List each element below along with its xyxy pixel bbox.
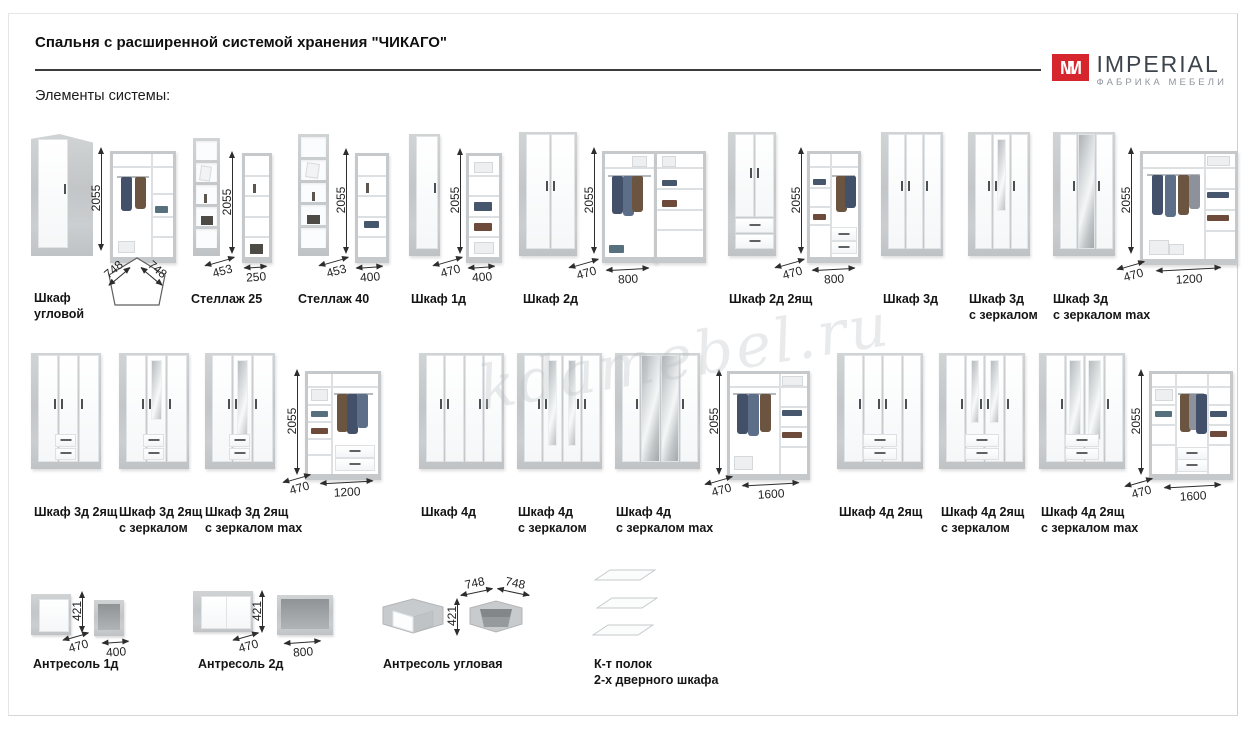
section-subtitle: Элементы системы: bbox=[35, 88, 170, 104]
product-caption: Антресоль 2д bbox=[198, 656, 283, 672]
coat bbox=[612, 176, 623, 214]
drawer-stack bbox=[965, 434, 999, 460]
dim-width: 400 bbox=[468, 266, 495, 285]
folded-clothes bbox=[155, 206, 168, 213]
shelving-closed-view bbox=[298, 134, 329, 256]
coat bbox=[1189, 175, 1200, 209]
product-caption: Шкаф 4д 2ящс зеркалом bbox=[941, 504, 1024, 536]
wardrobe-closed-view bbox=[939, 353, 1025, 469]
drawer-stack bbox=[143, 434, 165, 460]
drawer bbox=[229, 448, 251, 461]
storage-box bbox=[632, 156, 647, 167]
wardrobe-closed-view bbox=[881, 132, 943, 256]
wardrobe-open-view bbox=[1140, 151, 1238, 265]
drawer bbox=[735, 234, 774, 249]
wardrobe-open-view bbox=[305, 371, 381, 480]
door-panel bbox=[201, 596, 227, 629]
dim-width: 1600 bbox=[1165, 485, 1222, 505]
storage-box bbox=[1207, 156, 1229, 166]
books bbox=[199, 165, 212, 181]
folded-clothes bbox=[609, 245, 624, 253]
storage-box bbox=[1155, 389, 1173, 401]
dim-width: 250 bbox=[244, 266, 267, 284]
dim-height: 2055 bbox=[590, 147, 599, 254]
dim-depth: 470 bbox=[63, 633, 93, 657]
coat bbox=[135, 177, 146, 209]
folded-clothes bbox=[364, 221, 379, 228]
wardrobe-open-view bbox=[807, 151, 861, 263]
coat bbox=[760, 394, 771, 432]
shelf-panel bbox=[592, 624, 654, 637]
dim-depth: 470 bbox=[1125, 478, 1157, 502]
drawer bbox=[1065, 434, 1099, 447]
dim-side-a: 748 bbox=[458, 573, 493, 596]
product-caption: Шкаф 4дс зеркалом bbox=[518, 504, 587, 536]
door-panel bbox=[1060, 134, 1077, 249]
storage-box bbox=[118, 241, 136, 253]
wardrobe-open-view bbox=[466, 153, 502, 263]
wardrobe-closed-view bbox=[519, 132, 577, 256]
door-panel bbox=[622, 355, 640, 462]
drawer-stack bbox=[863, 434, 897, 460]
door-panel bbox=[524, 355, 542, 462]
drawer bbox=[863, 448, 897, 461]
wardrobe-open-hanging-view bbox=[602, 151, 657, 263]
catalog-sheet: Спальня с расширенной системой хранения … bbox=[8, 13, 1238, 716]
catalog-page: { "page": { "title": "Спальня с расширен… bbox=[0, 0, 1245, 730]
cabinet-interior bbox=[281, 599, 329, 629]
dim-width: 1600 bbox=[743, 483, 800, 503]
mirror-door bbox=[661, 355, 679, 462]
vase bbox=[312, 192, 315, 201]
storage-box bbox=[1169, 244, 1184, 254]
door-panel bbox=[465, 355, 483, 462]
folded-clothes bbox=[782, 432, 802, 438]
door-panel bbox=[680, 355, 698, 462]
drawer bbox=[831, 227, 857, 240]
product-caption: Шкаф 4дс зеркалом max bbox=[616, 504, 713, 536]
shelf-panel bbox=[594, 569, 656, 582]
dim-width: 1200 bbox=[321, 481, 374, 501]
vase bbox=[253, 184, 256, 193]
folded-clothes bbox=[311, 411, 328, 417]
product-caption: Антресоль угловая bbox=[383, 656, 503, 672]
folded-clothes bbox=[1207, 215, 1229, 221]
dim-height: 2055 bbox=[1127, 147, 1136, 254]
coat bbox=[1178, 175, 1189, 215]
product-caption: Шкаф 3дс зеркалом max bbox=[1053, 291, 1150, 323]
dim-height: 2055 bbox=[456, 148, 465, 254]
shelving-closed-view bbox=[193, 138, 220, 256]
wardrobe-closed-view bbox=[1053, 132, 1115, 256]
mirror bbox=[1088, 360, 1101, 440]
storage-box bbox=[474, 242, 493, 254]
drawer bbox=[1065, 448, 1099, 461]
coat bbox=[121, 177, 132, 211]
dim-width: 1200 bbox=[1157, 267, 1222, 287]
door-panel bbox=[993, 134, 1010, 249]
drawer bbox=[831, 241, 857, 254]
door-panel bbox=[735, 134, 754, 217]
dim-height: 2055 bbox=[1137, 369, 1146, 475]
wardrobe-closed-view bbox=[419, 353, 504, 469]
dim-depth: 453 bbox=[319, 257, 353, 282]
door-panel bbox=[975, 134, 992, 249]
dim-height: 421 bbox=[258, 590, 267, 633]
door-panel bbox=[946, 355, 965, 462]
corner-antresol-closed-view bbox=[381, 598, 445, 634]
dim-width: 800 bbox=[607, 268, 650, 287]
folded-clothes bbox=[813, 179, 826, 185]
wardrobe-closed-view bbox=[1039, 353, 1125, 469]
door-panel bbox=[924, 134, 941, 249]
folded-clothes bbox=[1210, 431, 1227, 437]
drawer bbox=[229, 434, 251, 447]
mirror bbox=[237, 360, 249, 440]
coat bbox=[737, 394, 748, 434]
drawer bbox=[55, 448, 77, 461]
door-panel bbox=[226, 596, 251, 629]
product-caption: Шкафугловой bbox=[34, 290, 84, 322]
dim-depth: 470 bbox=[775, 259, 809, 284]
dim-height: 2055 bbox=[293, 369, 302, 475]
mirror bbox=[971, 360, 980, 423]
dim-height: 2055 bbox=[797, 147, 806, 254]
door-panel bbox=[1096, 134, 1113, 249]
product-caption: Шкаф 2д 2ящ bbox=[729, 291, 812, 307]
folded-clothes bbox=[782, 410, 802, 416]
wardrobe-closed-view bbox=[728, 132, 776, 256]
folded-clothes bbox=[662, 200, 678, 206]
drawer bbox=[1177, 459, 1208, 472]
door-panel bbox=[844, 355, 863, 462]
door-panel bbox=[484, 355, 502, 462]
brand-name: IMPERIAL bbox=[1096, 54, 1227, 75]
brand-logo: MM IMPERIAL ФАБРИКА МЕБЕЛИ bbox=[1052, 54, 1227, 88]
door-panel bbox=[79, 355, 99, 462]
wardrobe-closed-view bbox=[31, 353, 101, 469]
shelf-panel bbox=[596, 597, 658, 610]
wardrobe-closed-view bbox=[205, 353, 275, 469]
shelving-open-view bbox=[242, 153, 272, 263]
folded-clothes bbox=[813, 214, 826, 220]
dim-side-b: 748 bbox=[498, 573, 533, 596]
storage-box bbox=[474, 162, 493, 173]
books bbox=[305, 162, 320, 179]
mirror bbox=[997, 139, 1006, 211]
product-caption: Шкаф 3дс зеркалом bbox=[969, 291, 1038, 323]
door-panel bbox=[167, 355, 187, 462]
product-caption: Шкаф 2д bbox=[523, 291, 578, 307]
coat bbox=[632, 176, 643, 212]
dim-height: 421 bbox=[78, 591, 87, 633]
drawer bbox=[143, 448, 165, 461]
product-caption: Стеллаж 40 bbox=[298, 291, 369, 307]
product-caption: Стеллаж 25 bbox=[191, 291, 262, 307]
product-caption: Шкаф 4д 2ящс зеркалом max bbox=[1041, 504, 1138, 536]
product-caption: Шкаф 3д 2ящ bbox=[34, 504, 117, 520]
dim-depth: 470 bbox=[569, 259, 603, 284]
mirror bbox=[1069, 360, 1082, 440]
door-panel bbox=[416, 136, 438, 249]
dim-depth: 470 bbox=[283, 474, 315, 498]
door-panel bbox=[39, 599, 69, 632]
product-caption: Шкаф 4д bbox=[421, 504, 476, 520]
door-panel bbox=[38, 139, 68, 248]
storage-box bbox=[1149, 240, 1169, 255]
product-caption: Шкаф 4д 2ящ bbox=[839, 504, 922, 520]
folded-clothes bbox=[1207, 192, 1229, 198]
door-panel bbox=[1005, 355, 1024, 462]
mirror bbox=[990, 360, 999, 423]
dim-depth: 470 bbox=[433, 257, 467, 282]
door-panel bbox=[526, 134, 550, 249]
drawer bbox=[965, 434, 999, 447]
dim-depth: 470 bbox=[1117, 261, 1149, 285]
folded-clothes bbox=[474, 223, 491, 231]
drawer-stack bbox=[735, 218, 774, 249]
mirror bbox=[151, 360, 163, 420]
drawer-stack bbox=[229, 434, 251, 460]
dim-depth: 453 bbox=[205, 257, 239, 282]
folded-clothes bbox=[1210, 411, 1227, 417]
cabinet-interior bbox=[98, 604, 120, 630]
wardrobe-open-view bbox=[1149, 371, 1233, 480]
dim-width: 400 bbox=[356, 266, 383, 285]
storage-box bbox=[311, 389, 328, 401]
wardrobe-closed-view bbox=[517, 353, 602, 469]
coat bbox=[1152, 175, 1163, 215]
product-caption: Шкаф 3д 2ящс зеркалом bbox=[119, 504, 202, 536]
door-panel bbox=[755, 134, 774, 217]
dim-value: 2055 bbox=[89, 168, 103, 228]
mirror-door bbox=[1078, 134, 1095, 249]
product-caption: Шкаф 1д bbox=[411, 291, 466, 307]
dim-height: 2055 bbox=[342, 148, 351, 254]
wardrobe-closed-view bbox=[968, 132, 1030, 256]
box bbox=[307, 215, 321, 224]
mirror bbox=[548, 360, 556, 446]
corner-wardrobe-open-view bbox=[110, 151, 176, 263]
folded-clothes bbox=[474, 202, 491, 210]
storage-box bbox=[662, 156, 677, 167]
door-panel bbox=[426, 355, 444, 462]
vase bbox=[366, 183, 369, 193]
storage-box bbox=[734, 456, 753, 470]
product-caption: К-т полок2-х дверного шкафа bbox=[594, 656, 718, 688]
corner-antresol-open-view bbox=[468, 600, 524, 634]
folded-clothes bbox=[662, 180, 678, 186]
coat bbox=[845, 176, 856, 208]
door-panel bbox=[582, 355, 600, 462]
door-panel bbox=[1105, 355, 1124, 462]
drawer bbox=[55, 434, 77, 447]
dim-height: 2055 bbox=[715, 369, 724, 475]
antresol-closed-view bbox=[193, 591, 253, 632]
coat bbox=[1165, 175, 1176, 217]
coat bbox=[748, 394, 759, 436]
wardrobe-closed-view bbox=[615, 353, 700, 469]
box bbox=[201, 216, 213, 225]
door-panel bbox=[445, 355, 463, 462]
wardrobe-closed-view bbox=[837, 353, 923, 469]
drawer bbox=[735, 218, 774, 233]
dim-width: 800 bbox=[813, 268, 856, 287]
dim-depth: 470 bbox=[233, 633, 263, 657]
wardrobe-closed-view bbox=[119, 353, 189, 469]
door-panel bbox=[551, 134, 575, 249]
dim-height: 2055 bbox=[97, 147, 106, 251]
box bbox=[250, 244, 263, 254]
door-panel bbox=[906, 134, 923, 249]
product-caption: Антресоль 1д bbox=[33, 656, 118, 672]
dim-width: 800 bbox=[284, 641, 321, 660]
folded-clothes bbox=[311, 428, 328, 434]
drawer-stack bbox=[1065, 434, 1099, 460]
door-panel bbox=[903, 355, 922, 462]
antresol-closed-view bbox=[31, 594, 71, 635]
dim-height: 2055 bbox=[228, 151, 237, 254]
door-panel bbox=[888, 134, 905, 249]
antresol-open-view bbox=[94, 600, 124, 636]
storage-box bbox=[782, 376, 802, 386]
coat bbox=[1196, 394, 1207, 434]
brand-logo-mark: MM bbox=[1052, 54, 1089, 81]
title-divider bbox=[35, 69, 1041, 71]
wardrobe-open-shelf-view bbox=[654, 151, 706, 263]
door-panel bbox=[563, 355, 581, 462]
shelving-open-view bbox=[355, 153, 389, 263]
drawer bbox=[143, 434, 165, 447]
vase bbox=[204, 194, 207, 203]
mirror-door bbox=[641, 355, 659, 462]
drawer bbox=[863, 434, 897, 447]
dim-height: 421 bbox=[453, 598, 462, 636]
door-panel bbox=[1046, 355, 1065, 462]
dim-depth: 470 bbox=[705, 476, 737, 500]
coat bbox=[357, 394, 368, 428]
door-panel bbox=[543, 355, 561, 462]
drawer-stack bbox=[55, 434, 77, 460]
drawer bbox=[335, 445, 376, 458]
drawer bbox=[965, 448, 999, 461]
folded-clothes bbox=[1155, 411, 1172, 417]
wardrobe-open-view bbox=[727, 371, 810, 480]
antresol-open-view bbox=[277, 595, 333, 635]
page-title: Спальня с расширенной системой хранения … bbox=[35, 34, 447, 51]
mirror bbox=[568, 360, 576, 446]
product-caption: Шкаф 3д 2ящс зеркалом max bbox=[205, 504, 302, 536]
door-panel bbox=[1011, 134, 1028, 249]
wardrobe-closed-view bbox=[409, 134, 440, 256]
brand-tagline: ФАБРИКА МЕБЕЛИ bbox=[1096, 77, 1227, 88]
product-caption: Шкаф 3д bbox=[883, 291, 938, 307]
drawer bbox=[335, 458, 376, 471]
door-panel bbox=[253, 355, 273, 462]
corner-wardrobe-closed-view bbox=[31, 134, 93, 256]
